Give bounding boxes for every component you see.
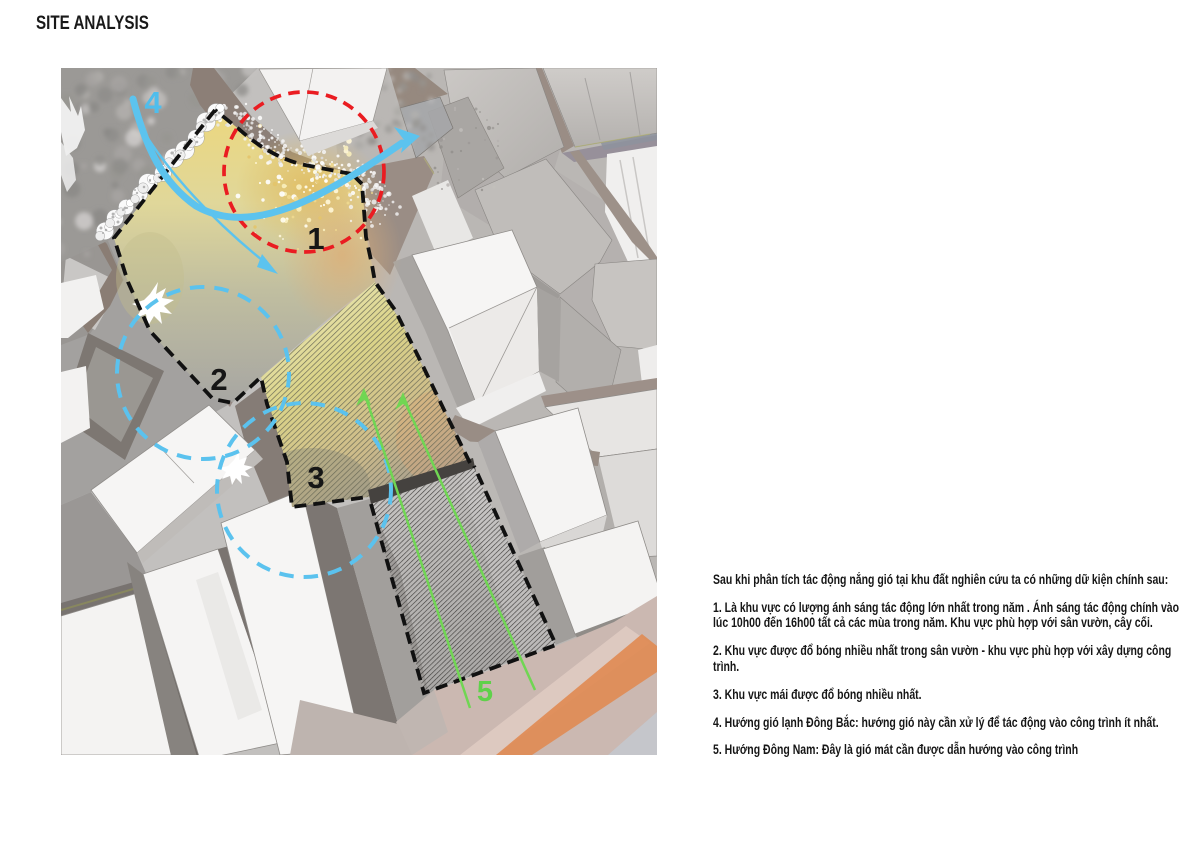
svg-text:4: 4 (144, 85, 162, 120)
svg-text:1: 1 (307, 221, 324, 256)
svg-text:3: 3 (307, 460, 324, 495)
svg-text:2: 2 (210, 362, 227, 397)
svg-text:5: 5 (477, 676, 493, 708)
